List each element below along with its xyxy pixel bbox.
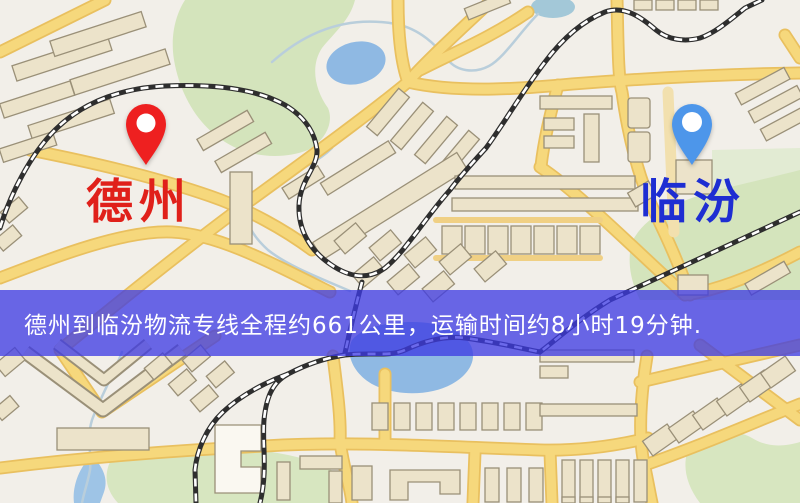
map-screenshot: 德州 临汾 德州到临汾物流专线全程约661公里，运输时间约8小时19分钟.: [0, 0, 800, 503]
destination-pin[interactable]: [667, 101, 717, 167]
route-info-banner: 德州到临汾物流专线全程约661公里，运输时间约8小时19分钟.: [0, 290, 800, 356]
destination-city-label: 临汾: [640, 179, 746, 226]
origin-city-label: 德州: [86, 179, 192, 226]
pin-hole: [682, 112, 702, 132]
origin-pin[interactable]: [121, 101, 171, 167]
pin-hole: [137, 114, 156, 133]
route-info-text: 德州到临汾物流专线全程约661公里，运输时间约8小时19分钟.: [24, 306, 702, 340]
map-canvas[interactable]: [0, 0, 800, 503]
pin-shape: [126, 104, 166, 165]
